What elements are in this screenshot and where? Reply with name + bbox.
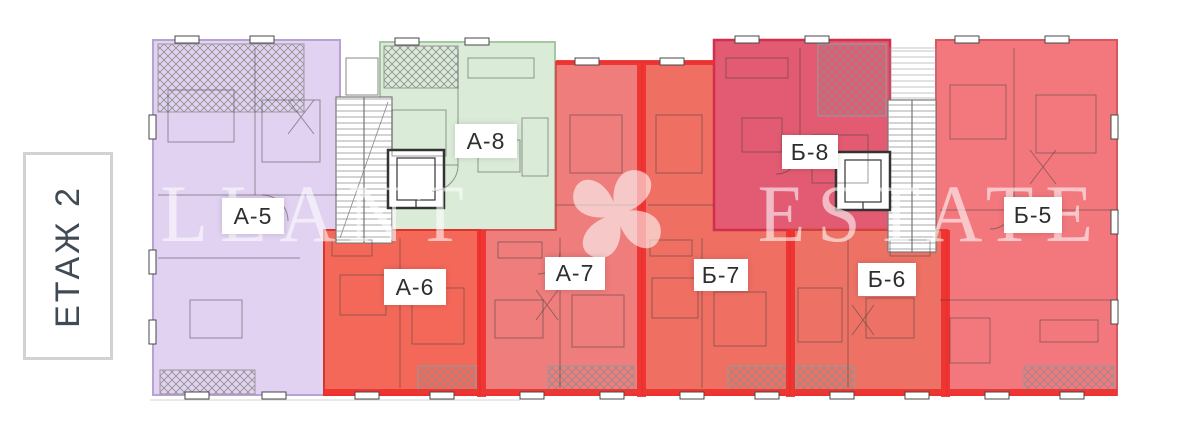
unit-label-b5[interactable]: Б-5 (1004, 197, 1062, 233)
unit-label-b6[interactable]: Б-6 (858, 263, 916, 296)
stairwell-right (888, 48, 936, 252)
unit-label-a7[interactable]: А-7 (545, 257, 605, 290)
unit-label-a8[interactable]: А-8 (455, 124, 517, 158)
unit-label-a5[interactable]: А-5 (222, 198, 284, 234)
floor-selector[interactable]: ЕТАЖ 2 (23, 152, 113, 360)
floorplan-page: ALLANT ESTATE А-5 А-6 А-7 А-8 Б-5 Б-6 Б-… (0, 0, 1200, 447)
elevator-left (388, 150, 444, 208)
unit-label-a6[interactable]: А-6 (384, 269, 446, 305)
unit-label-b8[interactable]: Б-8 (782, 135, 838, 169)
floor-selector-label: ЕТАЖ 2 (49, 185, 88, 328)
unit-label-b7[interactable]: Б-7 (694, 259, 748, 291)
elevator-right (836, 152, 890, 210)
